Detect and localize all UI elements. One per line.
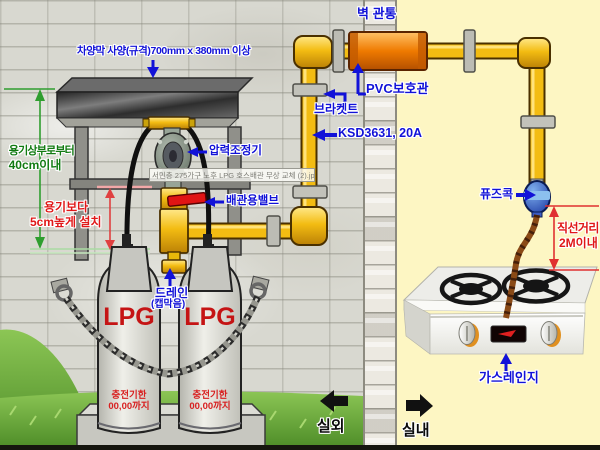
lpg-text-right: LPG: [179, 303, 241, 332]
pipe-elbow: [294, 36, 332, 68]
tee-connector: [148, 117, 190, 129]
pipe-flange: [333, 30, 344, 72]
pipe-flange: [464, 30, 475, 72]
gas-range: [404, 267, 597, 354]
expiry-right-line1: 충전기한: [179, 391, 241, 401]
pipe-union: [267, 216, 280, 246]
expiry-left-line1: 충전기한: [98, 391, 160, 401]
cylinder-collar: [188, 247, 232, 291]
label-drain: 드레인: [155, 287, 188, 300]
label-indoor: 실내: [402, 423, 430, 439]
canopy-leg-left: [75, 127, 88, 260]
label-canopy-spec: 차양막 사양(규격)700mm x 380mm 이상: [77, 46, 250, 57]
drain-cap-fitting: [162, 252, 186, 273]
canopy-spec-arrow: [147, 60, 159, 78]
label-wall-penetration: 벽 관통: [357, 7, 397, 21]
label-regulator: 압력조정기: [209, 145, 262, 157]
indoor-arrow: [406, 394, 433, 417]
pvc-sleeve: [349, 32, 427, 70]
pipe-valve-body: [161, 188, 206, 211]
lpg-installation-diagram: 서민층 275가구 노후 LPG 호스배관 무상 교체 (2).jpg 차양막 …: [0, 0, 600, 450]
label-40cm-line1: 용기상부로부터: [0, 146, 74, 158]
range-display: [491, 326, 526, 342]
lpg-text-left: LPG: [98, 303, 160, 332]
label-outdoor: 실외: [317, 419, 345, 435]
cylinder-collar: [107, 247, 151, 291]
label-5cm-line2: 5cm높게 설치: [30, 216, 102, 229]
label-2m-line2: 2M이내: [559, 237, 598, 250]
label-pipe-standard: KSD3631, 20A: [338, 127, 422, 140]
expiry-left-line2: 00,00까지: [98, 402, 160, 412]
label-pvc-protection: PVC보호관: [366, 82, 429, 96]
label-fuse-cock: 퓨즈콕: [480, 188, 513, 201]
pipe-elbow: [518, 38, 550, 68]
bottom-border: [0, 445, 600, 450]
label-40cm-line2: 40cm이내: [4, 159, 66, 172]
label-2m-line1: 직선거리: [557, 222, 599, 235]
watermark: 서민층 275가구 노후 LPG 호스배관 무상 교체 (2).jpg: [149, 168, 315, 182]
pipe-elbow: [291, 207, 327, 245]
label-bracket: 브라켓트: [314, 103, 358, 116]
expiry-right-line2: 00,00까지: [179, 402, 241, 412]
label-pipe-valve: 배관용밸브: [226, 195, 279, 207]
label-gas-range: 가스레인지: [479, 371, 539, 385]
label-5cm-line1: 용기보다: [44, 201, 88, 214]
